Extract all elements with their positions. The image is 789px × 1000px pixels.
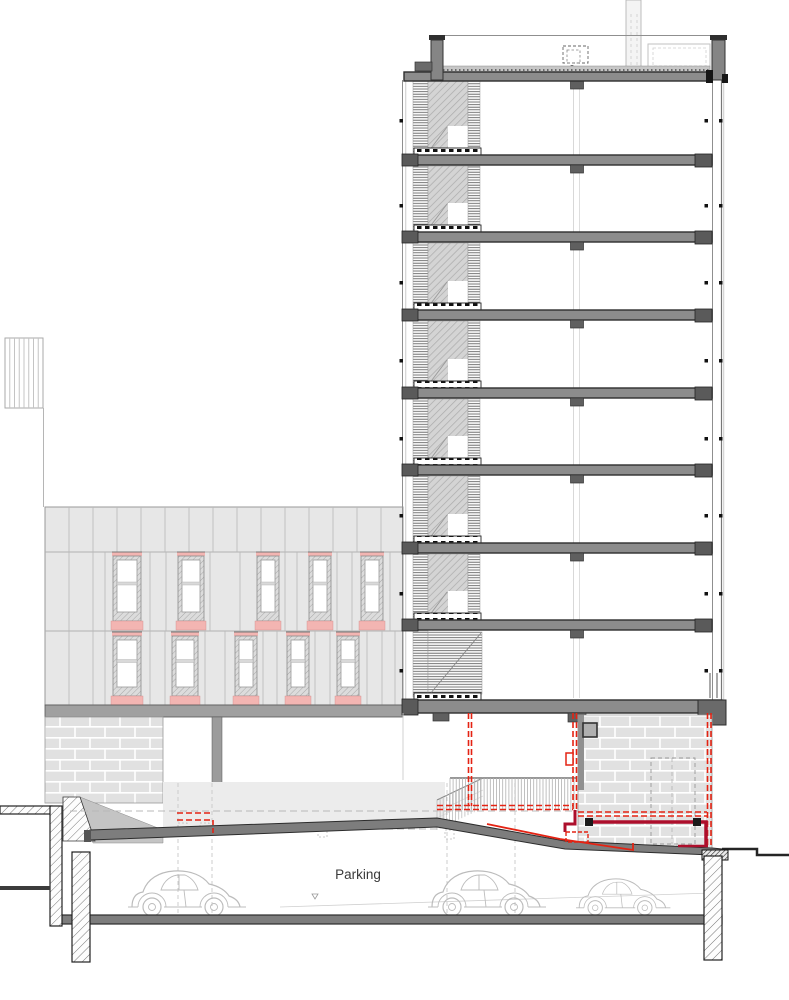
window-transom: [341, 660, 355, 663]
red-pipe-elbow: [565, 810, 575, 832]
slab-end-right: [695, 309, 712, 322]
ground-floor-brick-wall: [578, 715, 712, 850]
facade-fixing-dot: [400, 119, 404, 123]
guide-dashed-square: [445, 830, 454, 839]
window-head: [112, 632, 142, 636]
tower-story: [400, 243, 723, 309]
window-transom: [291, 660, 305, 663]
window-head: [308, 552, 332, 556]
parapet-hook-2: [722, 74, 728, 83]
louvre-strip-a: [413, 81, 428, 154]
column-capital: [571, 81, 584, 89]
balcony-paver-strip: [414, 613, 481, 620]
street-left-slab: [0, 806, 52, 814]
tower-story: [400, 81, 723, 154]
louvre-strip-a: [413, 166, 428, 231]
window-transom: [261, 582, 275, 585]
louvre-strip-a: [413, 399, 428, 464]
facade-fixing-dot: [400, 281, 404, 285]
slab-body: [404, 620, 712, 630]
louvre-strip-b: [468, 81, 480, 154]
floor-slab: [402, 148, 712, 167]
facade-fixing-dot: [719, 204, 723, 208]
slab-end-left: [402, 231, 418, 243]
window-sill: [335, 696, 361, 705]
window-head: [112, 552, 142, 556]
window: [255, 552, 281, 630]
chimney-outline: [626, 0, 641, 70]
window-head: [286, 632, 310, 636]
window-head: [336, 632, 360, 636]
window-sill: [170, 696, 200, 705]
retaining-wall-left-outer: [50, 806, 62, 926]
window: [111, 552, 143, 630]
window: [307, 552, 333, 630]
window-glass: [117, 560, 137, 612]
window-head: [360, 552, 384, 556]
floor-slab: [402, 381, 712, 400]
facade-fixing-dot: [400, 204, 404, 208]
parking-wall-left: [72, 852, 90, 962]
window-sill: [255, 621, 281, 630]
left-building-facade: [45, 507, 403, 803]
window-sill: [307, 621, 333, 630]
louvre-strip-b: [468, 399, 480, 464]
window-sill: [233, 696, 259, 705]
facade-fixing-dot: [719, 669, 723, 673]
facade-fixing-dot: [400, 437, 404, 441]
window-glass: [239, 640, 253, 687]
slab-end-right: [695, 387, 712, 400]
neighbor-building-outline: [5, 338, 44, 507]
window-glass: [341, 640, 355, 687]
floor-slab: [402, 303, 712, 322]
duct-section: [583, 723, 597, 737]
slab-end-right: [695, 154, 712, 167]
window: [335, 632, 361, 705]
facade-fixing-dot: [400, 592, 404, 596]
window-transom: [239, 660, 253, 663]
window-glass: [313, 560, 327, 612]
louvre-strip-b: [468, 476, 480, 542]
window-sill: [176, 621, 206, 630]
column-capital: [571, 475, 584, 483]
tower-story: [400, 166, 723, 231]
floor-slab: [402, 225, 712, 244]
slab-body: [404, 232, 712, 242]
slab-body: [404, 388, 712, 398]
column-capital: [571, 242, 584, 250]
slab-body: [404, 543, 712, 553]
window-transom: [176, 660, 194, 663]
window: [176, 552, 206, 630]
louvre-strip-a: [413, 554, 428, 619]
facade-fixing-dot: [705, 359, 709, 363]
slab-end-left: [402, 464, 418, 476]
window-sill: [285, 696, 311, 705]
balcony-paver-strip: [414, 148, 481, 155]
window-glass: [176, 640, 194, 687]
floor-slab: [402, 613, 712, 632]
column-capital: [571, 398, 584, 406]
column-capital: [571, 630, 584, 638]
parapet-cap-left: [429, 35, 445, 40]
window-glass: [182, 560, 200, 612]
facade-fixing-dot: [719, 119, 723, 123]
window: [111, 632, 143, 705]
slab-end-left: [402, 309, 418, 321]
louvre-strip-a: [413, 243, 428, 309]
louvre-strip-b: [468, 554, 480, 619]
tower-story: [400, 399, 723, 464]
tower-story: [400, 631, 723, 697]
facade-fixing-dot: [705, 514, 709, 518]
slab-body: [404, 155, 712, 165]
parapet-left: [431, 40, 443, 80]
window-sill: [111, 621, 143, 630]
ground-floor-column: [212, 717, 222, 783]
tower-section: [400, 0, 729, 725]
balcony-paver-strip: [414, 381, 481, 388]
floor-slab: [402, 458, 712, 477]
window: [233, 632, 259, 705]
window-head: [177, 552, 205, 556]
slab-end-left: [402, 387, 418, 399]
window-transom: [365, 582, 379, 585]
slab-end-left: [402, 619, 418, 631]
louvre-strip-b: [468, 166, 480, 231]
window-sill: [111, 696, 143, 705]
plinth-brick-wall: [45, 717, 163, 803]
window: [359, 552, 385, 630]
parapet-bracket: [415, 62, 432, 71]
window-transom: [117, 582, 137, 585]
window-glass: [365, 560, 379, 612]
facade-fixing-dot: [719, 359, 723, 363]
pipe-fitting-1: [585, 818, 593, 826]
louvre-strip-a: [413, 321, 428, 387]
facade-fixing-dot: [705, 119, 709, 123]
window-transom: [117, 660, 137, 663]
facade-fixing-dot: [719, 514, 723, 518]
cars: [128, 871, 670, 916]
red-valve-box: [566, 753, 573, 765]
slab-end-right: [695, 464, 712, 477]
slab-end-right: [695, 231, 712, 244]
section-svg: Parking: [0, 0, 789, 1000]
window-glass: [291, 640, 305, 687]
column-capital: [571, 165, 584, 173]
tower-story: [400, 476, 723, 542]
roof-topping: [418, 66, 710, 72]
architectural-section-drawing: Parking: [0, 0, 789, 1000]
window-head: [256, 552, 280, 556]
roof: [404, 0, 728, 83]
parking-faint-line: [280, 893, 712, 907]
parking-label: Parking: [335, 867, 381, 882]
window-glass: [117, 640, 137, 687]
car: [128, 871, 246, 916]
facade-fixing-dot: [705, 437, 709, 441]
street-right-line: [722, 849, 789, 855]
string-course-band: [45, 705, 403, 717]
louvre-strip-a: [413, 476, 428, 542]
tower-story: [400, 321, 723, 387]
facade-fixing-dot: [719, 281, 723, 285]
parapet-cap-right: [710, 35, 727, 40]
louvre-strip-a: [413, 631, 428, 697]
facade-fixing-dot: [400, 669, 404, 673]
floor-slab: [402, 536, 712, 555]
level-marker: [312, 894, 318, 899]
balcony-paver-strip: [414, 536, 481, 543]
street-left-lower-edge: [0, 886, 50, 890]
louvre-strip-b: [468, 321, 480, 387]
window-head: [234, 632, 258, 636]
facade-fixing-dot: [705, 669, 709, 673]
parapet-hook-1: [706, 70, 713, 83]
window-head: [171, 632, 199, 636]
facade-fixing-dot: [400, 514, 404, 518]
facade-fixing-dot: [705, 592, 709, 596]
facade-fixing-dot: [719, 592, 723, 596]
facade-fixing-dot: [719, 437, 723, 441]
slab-body: [404, 310, 712, 320]
facade-fixing-dot: [705, 204, 709, 208]
slab-end-left: [402, 154, 418, 166]
roof-slab: [404, 72, 712, 81]
slab-end-right: [695, 542, 712, 555]
neighbor-stripes: [10, 338, 39, 408]
car: [428, 871, 546, 916]
louvre-strip-b: [468, 243, 480, 309]
balcony-paver-strip: [414, 458, 481, 465]
slab-body: [404, 465, 712, 475]
slab-left-notch: [84, 830, 91, 842]
window-transom: [182, 582, 200, 585]
window-transom: [313, 582, 327, 585]
window-glass: [261, 560, 275, 612]
facade-fixing-dot: [400, 359, 404, 363]
window-sill: [359, 621, 385, 630]
parking-wall-right: [704, 856, 722, 960]
slab-end-right: [695, 619, 712, 632]
balcony-paver-strip: [414, 225, 481, 232]
window: [170, 632, 200, 705]
tower-story: [400, 554, 723, 619]
parking-floor-slab: [60, 915, 722, 924]
slab-end-left: [402, 542, 418, 554]
pipe-fitting-2: [693, 818, 701, 826]
facade-fixing-dot: [705, 281, 709, 285]
column-capital: [571, 320, 584, 328]
column-capital: [571, 553, 584, 561]
balcony-paver-strip: [414, 303, 481, 310]
window: [285, 632, 311, 705]
